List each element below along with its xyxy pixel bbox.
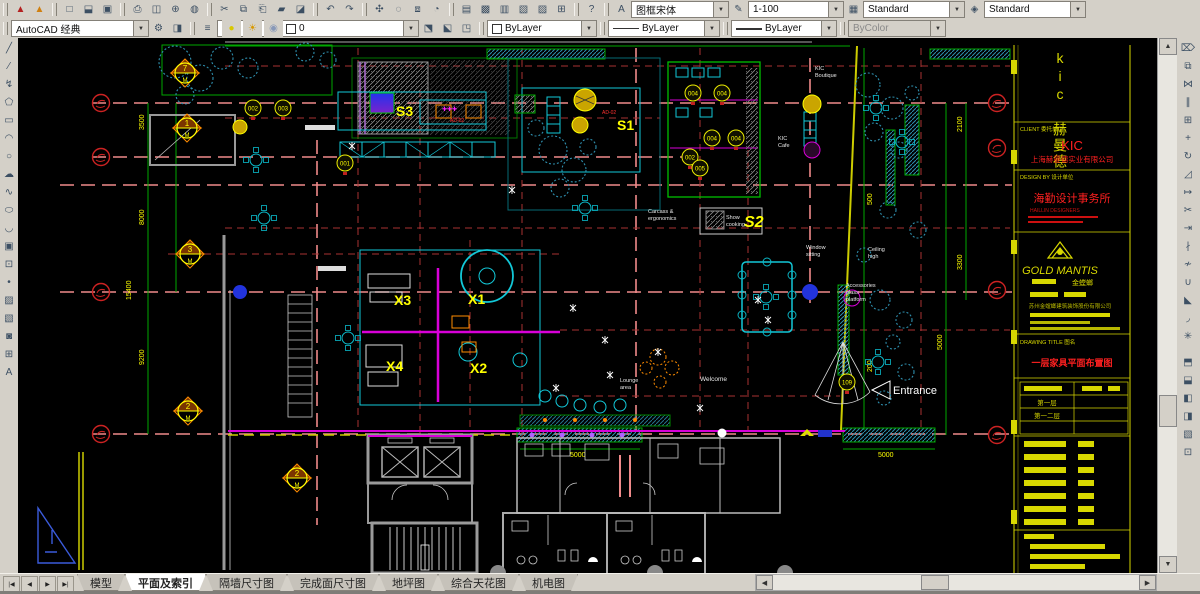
building-shell (150, 42, 850, 570)
field-label-bars (1024, 441, 1094, 525)
scroll-left-icon[interactable]: ◀ (756, 575, 773, 590)
break-icon[interactable]: ≁ (1179, 256, 1198, 274)
text-style-icon[interactable]: A (612, 1, 631, 18)
linetype-sample (613, 28, 639, 29)
entrance-arrow (872, 381, 890, 399)
rectangle-icon[interactable]: ▭ (0, 112, 19, 130)
figure-symbol (655, 348, 661, 356)
kic-boutique-text2: Boutique (815, 73, 837, 79)
accessories-text: Accessories (846, 283, 876, 289)
magenta-marks: ✚✚✚ (442, 106, 457, 113)
toolbar-grip[interactable] (479, 22, 484, 35)
entrance-text: Entrance (893, 385, 937, 397)
save-icon[interactable]: ▣ (98, 1, 117, 18)
tree-symbol (539, 136, 567, 164)
lounge-text: Lounge (620, 378, 638, 384)
make-object-layer-current-icon[interactable]: ⬔ (419, 20, 438, 37)
chevron-down-icon[interactable]: ▼ (821, 21, 836, 36)
svg-text:005: 005 (695, 167, 706, 173)
figure-symbol (509, 186, 515, 194)
trim-icon[interactable]: ✂ (1179, 202, 1198, 220)
sheetset-manager-icon[interactable]: ▧ (514, 1, 533, 18)
dim-5000-c: 5000 (878, 452, 894, 459)
table-row-2: 第一二层 (1034, 411, 1061, 420)
elevation-marker-number: 1 (185, 119, 190, 128)
bottom-bars (1024, 534, 1120, 569)
pan-icon[interactable]: ✣ (370, 1, 389, 18)
array-icon[interactable]: ⊞ (1179, 112, 1198, 130)
circle-icon[interactable]: ○ (0, 148, 19, 166)
table-row-1: 第一层 (1037, 398, 1057, 407)
sun-icon[interactable]: ☀ (243, 20, 262, 37)
dim-15400: 15400 (126, 280, 133, 300)
workspace-combo[interactable]: AutoCAD 经典 ▼ (11, 20, 149, 37)
title-block: kic 赫曼德 CLIENT 委托单位 KIC 上海赫曼德实业有限公司 DESI… (1011, 45, 1130, 573)
lineweight-sample (736, 28, 762, 30)
break-at-point-icon[interactable]: ∤ (1179, 238, 1198, 256)
dim-style-combo[interactable]: Standard ▼ (863, 1, 965, 18)
redo-icon[interactable]: ↷ (340, 1, 359, 18)
copy-clip-icon[interactable]: ⧉ (234, 1, 253, 18)
chevron-down-icon[interactable]: ▼ (403, 21, 418, 36)
workspace-value: AutoCAD 经典 (16, 21, 80, 36)
tree-symbol (870, 290, 890, 310)
tree-symbol (905, 86, 919, 100)
tree-symbol (886, 335, 900, 349)
scale-value: 1-100 (753, 4, 779, 15)
toolbar-grip[interactable] (207, 3, 212, 16)
dim-5000: 5000 (937, 334, 944, 350)
open-file-icon[interactable]: ⬓ (79, 1, 98, 18)
linetype-value: ByLayer (642, 23, 679, 34)
table-symbol (342, 332, 354, 344)
client-company: 上海赫曼德实业有限公司 (1031, 154, 1114, 164)
layout-tab-模型[interactable]: 模型 (77, 574, 125, 591)
toolbar-grip[interactable] (120, 3, 125, 16)
bring-above-icon[interactable]: ◧ (1179, 390, 1198, 408)
hatch-to-back-icon[interactable]: ⊡ (1179, 444, 1198, 462)
svg-text:002: 002 (685, 156, 696, 162)
elevation-marker-number: 3 (188, 245, 193, 254)
join-icon[interactable]: ∪ (1179, 274, 1198, 292)
figure-symbol (607, 371, 613, 379)
make-block-icon[interactable]: ⊡ (0, 256, 19, 274)
show-cooking-text: Show (726, 215, 740, 221)
tab-nav-first-icon[interactable]: |◀ (3, 576, 20, 592)
figure-symbol (765, 316, 771, 324)
toolbar-grip[interactable] (449, 3, 454, 16)
zone-x3: X3 (394, 292, 411, 308)
tree-symbol (910, 222, 926, 238)
layout-tab-地坪图[interactable]: 地坪图 (379, 574, 438, 591)
dim-style-icon[interactable]: ✎ (729, 1, 748, 18)
table-symbol (250, 154, 262, 166)
toolbar-grip[interactable] (362, 3, 367, 16)
accessories-text3: platform (846, 297, 866, 303)
toolbar-grip[interactable] (190, 22, 195, 35)
text-style-combo[interactable]: 图框宋体 ▼ (631, 1, 729, 18)
scroll-right-icon[interactable]: ▶ (1139, 575, 1156, 590)
annotation-text: Welcome Entrance KIC Boutique KIC Cafe C… (442, 66, 937, 397)
toolbar-grip[interactable] (600, 22, 605, 35)
arc-icon[interactable]: ◠ (0, 130, 19, 148)
chevron-down-icon[interactable]: ▼ (133, 21, 148, 36)
dim-8000: 8000 (139, 209, 146, 225)
toolbar-grip[interactable] (3, 3, 8, 16)
pdf-export-icon[interactable]: ▲ (11, 1, 30, 18)
tool-palettes-icon[interactable]: ▥ (495, 1, 514, 18)
svg-text:003: 003 (278, 107, 289, 113)
zone-s2: S2 (744, 214, 764, 231)
layer-properties-icon[interactable]: ≡ (198, 20, 217, 37)
figure-symbol (602, 336, 608, 344)
mirror-icon[interactable]: ⋈ (1179, 76, 1198, 94)
designer-name: 海勤设计事务所 (1034, 191, 1111, 205)
ellipse-icon[interactable]: ⬭ (0, 202, 19, 220)
region-icon[interactable]: ◙ (0, 328, 19, 346)
tree-symbol (881, 97, 903, 119)
send-to-back-icon[interactable]: ⬓ (1179, 372, 1198, 390)
drawing-title-label: DRAWING TITLE 图名 (1020, 338, 1075, 346)
revision-cloud-icon[interactable]: ☁ (0, 166, 19, 184)
pdf-convert-icon[interactable]: ▲ (30, 1, 49, 18)
toolbar-grip[interactable] (723, 22, 728, 35)
lounge-text2: area (620, 385, 632, 391)
fillet-icon[interactable]: ◞ (1179, 310, 1198, 328)
polyline-icon[interactable]: ↯ (0, 76, 19, 94)
table-style-combo[interactable]: Standard ▼ (984, 1, 1086, 18)
layout-tab-平面及索引[interactable]: 平面及索引 (125, 574, 206, 591)
polygon-icon[interactable]: ⬠ (0, 94, 19, 112)
lineweight-combo[interactable]: ByLayer ▼ (731, 20, 837, 37)
grid-bubble (989, 282, 1006, 299)
insert-block-icon[interactable]: ▣ (0, 238, 19, 256)
lock-icon[interactable]: ◉ (264, 20, 283, 37)
dim-style-value: Standard (868, 4, 909, 15)
figure-symbol (553, 384, 559, 392)
spline-icon[interactable]: ∿ (0, 184, 19, 202)
plot-preview-icon[interactable]: ◫ (147, 1, 166, 18)
workspace-settings-icon[interactable]: ⚙ (149, 20, 168, 37)
svg-text:004: 004 (707, 137, 718, 143)
construction-line-icon[interactable]: ⁄ (0, 58, 19, 76)
table-symbol (579, 202, 591, 214)
dim-9200: 9200 (139, 349, 146, 365)
tree-symbol (856, 73, 880, 97)
floor-plan: 3500 8000 15400 9200 2100 3300 5000 500 … (18, 38, 1157, 573)
layer-states-icon[interactable]: ◳ (457, 20, 476, 37)
zoom-previous-icon[interactable]: ◔ (427, 1, 446, 18)
rotate-icon[interactable]: ↻ (1179, 148, 1198, 166)
scale-icon[interactable]: ◿ (1179, 166, 1198, 184)
match-properties-icon[interactable]: ▰ (272, 1, 291, 18)
elevation-marker-number: 2 (186, 402, 191, 411)
color-swatch (492, 24, 502, 34)
toilet-fixture (621, 556, 629, 564)
chevron-down-icon[interactable]: ▼ (949, 2, 964, 17)
send-under-icon[interactable]: ◨ (1179, 408, 1198, 426)
zone-s1: S1 (617, 117, 634, 133)
svg-text:M: M (183, 78, 188, 84)
paste-icon[interactable]: ⎗ (253, 1, 272, 18)
chevron-down-icon[interactable]: ▼ (581, 21, 596, 36)
undo-icon[interactable]: ↶ (321, 1, 340, 18)
zone-s3: S3 (396, 103, 413, 119)
linetype-combo[interactable]: ByLayer ▼ (608, 20, 720, 37)
layout-tab-完成面尺寸图[interactable]: 完成面尺寸图 (287, 574, 379, 591)
vertical-scrollbar[interactable]: ▲ ▼ (1157, 38, 1177, 573)
counter-boxes (340, 142, 495, 157)
block-editor-icon[interactable]: ◪ (291, 1, 310, 18)
chevron-down-icon[interactable]: ▼ (828, 2, 843, 17)
toolbar-grip[interactable] (52, 3, 57, 16)
window-sitting-text: Window (806, 245, 826, 251)
markup-icon[interactable]: ▨ (533, 1, 552, 18)
ellipse-arc-icon[interactable]: ◡ (0, 220, 19, 238)
layer-combo[interactable]: ●☀◉ 0 ▼ (217, 20, 419, 37)
dim-500: 500 (867, 193, 874, 205)
text-to-front-icon[interactable]: ▧ (1179, 426, 1198, 444)
client-label: CLIENT 委托单位 (1020, 125, 1063, 133)
core-structures (38, 429, 845, 574)
horizontal-scroll-thumb[interactable] (921, 575, 949, 590)
layer-name: 0 (299, 23, 305, 34)
ad02-text: AD-02 (450, 118, 464, 124)
svg-text:001: 001 (340, 162, 351, 168)
move-icon[interactable]: + (1179, 130, 1198, 148)
drawing-area[interactable]: 3500 8000 15400 9200 2100 3300 5000 500 … (18, 38, 1157, 573)
plot-icon[interactable]: ⎙ (128, 1, 147, 18)
plotstyle-value: ByColor (853, 23, 889, 34)
layout-tab-机电图[interactable]: 机电图 (519, 574, 578, 591)
text-style-value: 图框宋体 (636, 2, 676, 17)
draw-toolbar: ╱⁄↯⬠▭◠○☁∿⬭◡▣⊡•▨▧◙⊞A (0, 38, 19, 575)
client-name: KIC (1061, 138, 1083, 153)
layer-color-swatch (286, 24, 296, 34)
dim-3300: 3300 (957, 254, 964, 270)
color-combo[interactable]: ByLayer ▼ (487, 20, 597, 37)
hatch-icon[interactable]: ▨ (0, 292, 19, 310)
multileader-style-icon[interactable]: ◈ (965, 1, 984, 18)
tab-nav-next-icon[interactable]: ▶ (39, 576, 56, 592)
tree-symbol (562, 158, 586, 182)
table-symbol (258, 212, 270, 224)
symbols: 7M1M3M2M2M002003001004004004004002005109 (93, 43, 1006, 570)
grid-bubble (989, 140, 1006, 157)
modify-toolbar: ⌦⧉⋈∥⊞+↻◿↦✂⇥∤≁∪◣◞✳⬒⬓◧◨▧⊡ (1175, 38, 1200, 575)
toolbar-grip[interactable] (574, 3, 579, 16)
table-style-value: Standard (989, 4, 1030, 15)
carcass-text: Carcass & (648, 209, 674, 215)
lineweight-value: ByLayer (765, 23, 802, 34)
toolbar-grip[interactable] (840, 22, 845, 35)
lounge-seating (539, 390, 626, 413)
figure-symbol (570, 304, 576, 312)
tree-symbol (551, 179, 569, 197)
point-icon[interactable]: • (0, 274, 19, 292)
toolbar-grip[interactable] (3, 22, 8, 35)
tree-symbol (580, 139, 596, 155)
table-icon[interactable]: ⊞ (0, 346, 19, 364)
ad02-text2: AD-02 (602, 110, 616, 116)
zone-x1: X1 (468, 291, 485, 307)
scroll-down-icon[interactable]: ▼ (1159, 556, 1177, 573)
toolbar-grip[interactable] (313, 3, 318, 16)
horizontal-scrollbar[interactable]: ◀ ▶ (755, 574, 1157, 591)
chevron-down-icon[interactable]: ▼ (713, 2, 728, 17)
drawing-title: 一层家具平面布置图 (1031, 357, 1112, 368)
chevron-down-icon: ▼ (930, 21, 945, 36)
designcenter-icon[interactable]: ▩ (476, 1, 495, 18)
copy-icon[interactable]: ⧉ (1179, 58, 1198, 76)
autocad-window: ▲▲□⬓▣⎙◫⊕◍✂⧉⎗▰◪↶↷✣◌⧈◔▤▩▥▧▨⊞?A 图框宋体 ▼ ✎ 1-… (0, 0, 1200, 594)
mtext-icon[interactable]: A (0, 364, 19, 382)
chamfer-icon[interactable]: ◣ (1179, 292, 1198, 310)
svg-text:002: 002 (248, 107, 259, 113)
elevation-marker-number: 2 (295, 469, 300, 478)
chevron-down-icon[interactable]: ▼ (1070, 2, 1085, 17)
welcome-text: Welcome (700, 376, 727, 383)
cut-icon[interactable]: ✂ (215, 1, 234, 18)
extend-icon[interactable]: ⇥ (1179, 220, 1198, 238)
grid-bubble (989, 427, 1006, 444)
tree-symbol (238, 58, 258, 78)
table-symbol (870, 102, 882, 114)
svg-text:M: M (295, 483, 300, 489)
rooms (233, 58, 890, 417)
svg-text:M: M (185, 133, 190, 139)
zoom-realtime-icon[interactable]: ◌ (389, 1, 408, 18)
designer-en: HAILLIN DESIGNERS (1030, 208, 1080, 214)
kic-cafe-text2: Cafe (778, 143, 790, 149)
quickcalc-icon[interactable]: ⊞ (552, 1, 571, 18)
standard-toolbar: ▲▲□⬓▣⎙◫⊕◍✂⧉⎗▰◪↶↷✣◌⧈◔▤▩▥▧▨⊞?A 图框宋体 ▼ ✎ 1-… (0, 0, 1200, 20)
window-sitting-text2: sitting (806, 252, 820, 258)
svg-text:109: 109 (842, 381, 853, 387)
tree-symbol (896, 312, 912, 328)
svg-text:M: M (188, 259, 193, 265)
vertical-scroll-thumb[interactable] (1159, 395, 1177, 427)
dim-5000-b: 5000 (570, 452, 586, 459)
scale-combo[interactable]: 1-100 ▼ (748, 1, 844, 18)
plotstyle-combo: ByColor ▼ (848, 20, 946, 37)
bring-to-front-icon[interactable]: ⬒ (1179, 354, 1198, 372)
show-cooking-text2: cooking (726, 222, 745, 228)
tab-nav-prev-icon[interactable]: ◀ (21, 576, 38, 592)
tree-symbol (528, 120, 544, 136)
kic-cafe-text: KIC (778, 136, 787, 142)
layers-properties-toolbar: AutoCAD 经典 ▼ ⚙◨ ≡ ●☀◉ 0 ▼ ⬔⬕◳ ByLayer ▼ … (0, 19, 1200, 39)
stairs (390, 527, 460, 570)
svg-text:004: 004 (688, 92, 699, 98)
zone-x4: X4 (386, 358, 403, 374)
left-stairs (288, 295, 312, 417)
chevron-down-icon[interactable]: ▼ (704, 21, 719, 36)
logo-company: 苏州金螳螂建筑装饰股份有限公司 (1029, 302, 1112, 310)
tree-symbol (865, 123, 883, 141)
logo-cn: 金螳螂 (1072, 278, 1093, 287)
layout-tab-综合天花图[interactable]: 综合天花图 (438, 574, 519, 591)
lightbulb-icon[interactable]: ● (222, 20, 241, 37)
layer-previous-icon[interactable]: ⬕ (438, 20, 457, 37)
tree-symbol (654, 376, 666, 388)
designer-label: DESIGN BY 设计单位 (1020, 173, 1074, 181)
svg-text:004: 004 (717, 92, 728, 98)
zoom-window-icon[interactable]: ⧈ (408, 1, 427, 18)
erase-icon[interactable]: ⌦ (1179, 40, 1198, 58)
offset-icon[interactable]: ∥ (1179, 94, 1198, 112)
tree-symbol (211, 47, 233, 69)
logo-name: GOLD MANTIS (1022, 265, 1098, 277)
layout-tab-隔墙尺寸图[interactable]: 隔墙尺寸图 (206, 574, 287, 591)
publish-icon[interactable]: ⊕ (166, 1, 185, 18)
gold-mantis-logo: GOLD MANTIS 金螳螂 苏州金螳螂建筑装饰股份有限公司 (1022, 242, 1120, 330)
explode-icon[interactable]: ✳ (1179, 328, 1198, 346)
properties-icon[interactable]: ▤ (457, 1, 476, 18)
svg-text:M: M (186, 416, 191, 422)
tab-nav-last-icon[interactable]: ▶| (57, 576, 74, 592)
toilet-fixture (517, 556, 525, 564)
dim-2100: 2100 (957, 116, 964, 132)
dim-3500: 3500 (139, 114, 146, 130)
gradient-icon[interactable]: ▧ (0, 310, 19, 328)
scroll-up-icon[interactable]: ▲ (1159, 38, 1177, 55)
tree-symbol (898, 364, 914, 380)
line-icon[interactable]: ╱ (0, 40, 19, 58)
tree-symbol (665, 361, 679, 375)
stretch-icon[interactable]: ↦ (1179, 184, 1198, 202)
table-style-icon[interactable]: ▦ (844, 1, 863, 18)
toolbar-grip[interactable] (604, 3, 609, 16)
new-file-icon[interactable]: □ (60, 1, 79, 18)
tree-symbol (640, 362, 652, 374)
help-icon[interactable]: ? (582, 1, 601, 18)
carcass-text2: ergonomics (648, 216, 677, 222)
accessories-text2: glass (846, 290, 859, 296)
kic-boutique-text: KIC (815, 66, 824, 72)
dwf-viewer-icon[interactable]: ◍ (185, 1, 204, 18)
color-value: ByLayer (505, 23, 542, 34)
svg-text:004: 004 (731, 137, 742, 143)
figure-symbol (697, 404, 703, 412)
zone-x2: X2 (470, 360, 487, 376)
elevation-marker-number: 7 (183, 64, 188, 73)
workspace-save-icon[interactable]: ◨ (168, 20, 187, 37)
